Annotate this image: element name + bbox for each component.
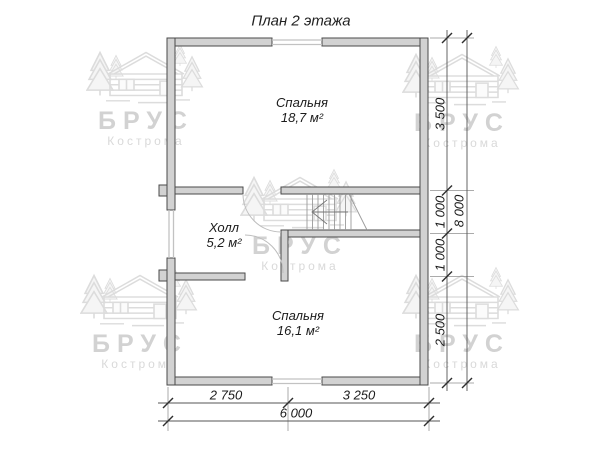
room-area: 18,7 м² <box>276 110 328 125</box>
stair-direction-arrow <box>312 200 348 224</box>
room-name: Спальня <box>272 308 324 323</box>
floor-plan-drawing <box>0 0 600 450</box>
room-label-hall: Холл 5,2 м² <box>207 220 242 250</box>
dimension-label-2500: 2 500 <box>433 314 448 347</box>
floor-plan-canvas: БРУС Кострома БРУС Кострома БРУС Костром… <box>0 0 600 450</box>
room-name: Холл <box>207 220 242 235</box>
dimension-label-3500: 3 500 <box>433 98 448 131</box>
room-name: Спальня <box>276 95 328 110</box>
dimension-label-8000: 8 000 <box>452 195 467 228</box>
door-arc <box>243 194 283 273</box>
room-label-bedroom1: Спальня 18,7 м² <box>276 95 328 125</box>
page-title: План 2 этажа <box>251 13 350 30</box>
dimension-label-3250: 3 250 <box>343 388 376 403</box>
dimension-label-2750: 2 750 <box>210 388 243 403</box>
dimension-label-1000a: 1 000 <box>433 196 448 229</box>
room-area: 16,1 м² <box>272 323 324 338</box>
dimension-label-1000b: 1 000 <box>433 239 448 272</box>
room-area: 5,2 м² <box>207 235 242 250</box>
dimension-label-6000: 6 000 <box>280 406 313 421</box>
room-label-bedroom2: Спальня 16,1 м² <box>272 308 324 338</box>
staircase <box>307 194 367 230</box>
